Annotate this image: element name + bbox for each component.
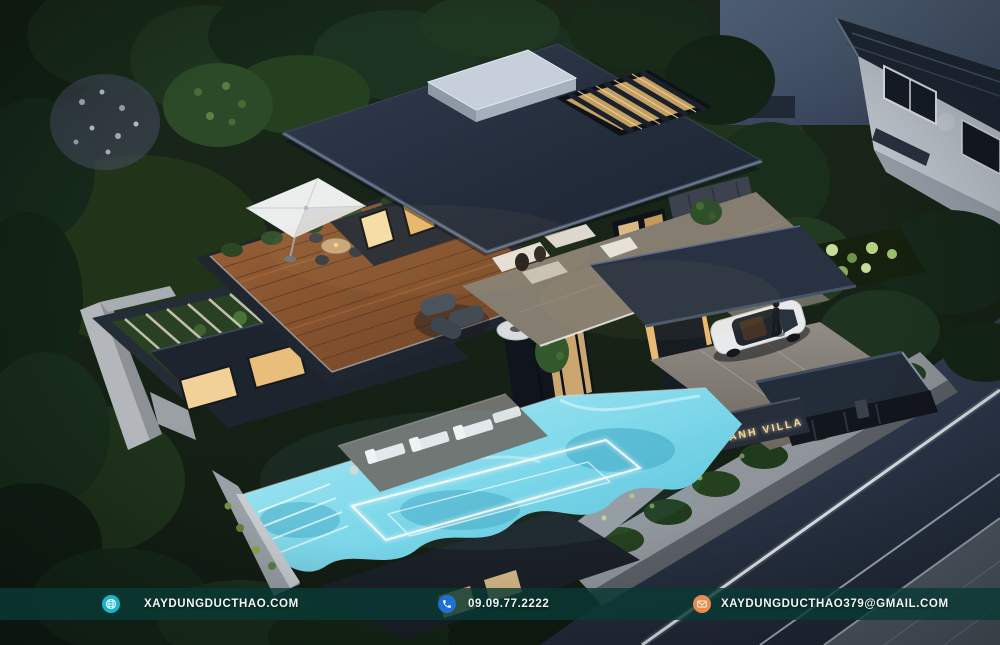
vignette: [0, 0, 1000, 645]
email-text: XAYDUNGDUCTHAO379@GMAIL.COM: [721, 598, 949, 610]
footer-email[interactable]: XAYDUNGDUCTHAO379@GMAIL.COM: [693, 588, 949, 620]
scene-illustration: HOANG ANH VILLA HOANG ANH VILLA: [0, 0, 1000, 645]
footer-contact-bar: XAYDUNGDUCTHAO.COM 09.09.77.2222 XAYDUNG…: [0, 588, 1000, 620]
footer-website[interactable]: XAYDUNGDUCTHAO.COM: [102, 588, 299, 620]
website-text: XAYDUNGDUCTHAO.COM: [144, 598, 299, 610]
mail-icon: [693, 595, 711, 613]
globe-icon: [102, 595, 120, 613]
phone-icon: [438, 595, 456, 613]
footer-phone[interactable]: 09.09.77.2222: [438, 588, 549, 620]
villa-render-image: HOANG ANH VILLA HOANG ANH VILLA: [0, 0, 1000, 645]
phone-text: 09.09.77.2222: [468, 598, 549, 610]
